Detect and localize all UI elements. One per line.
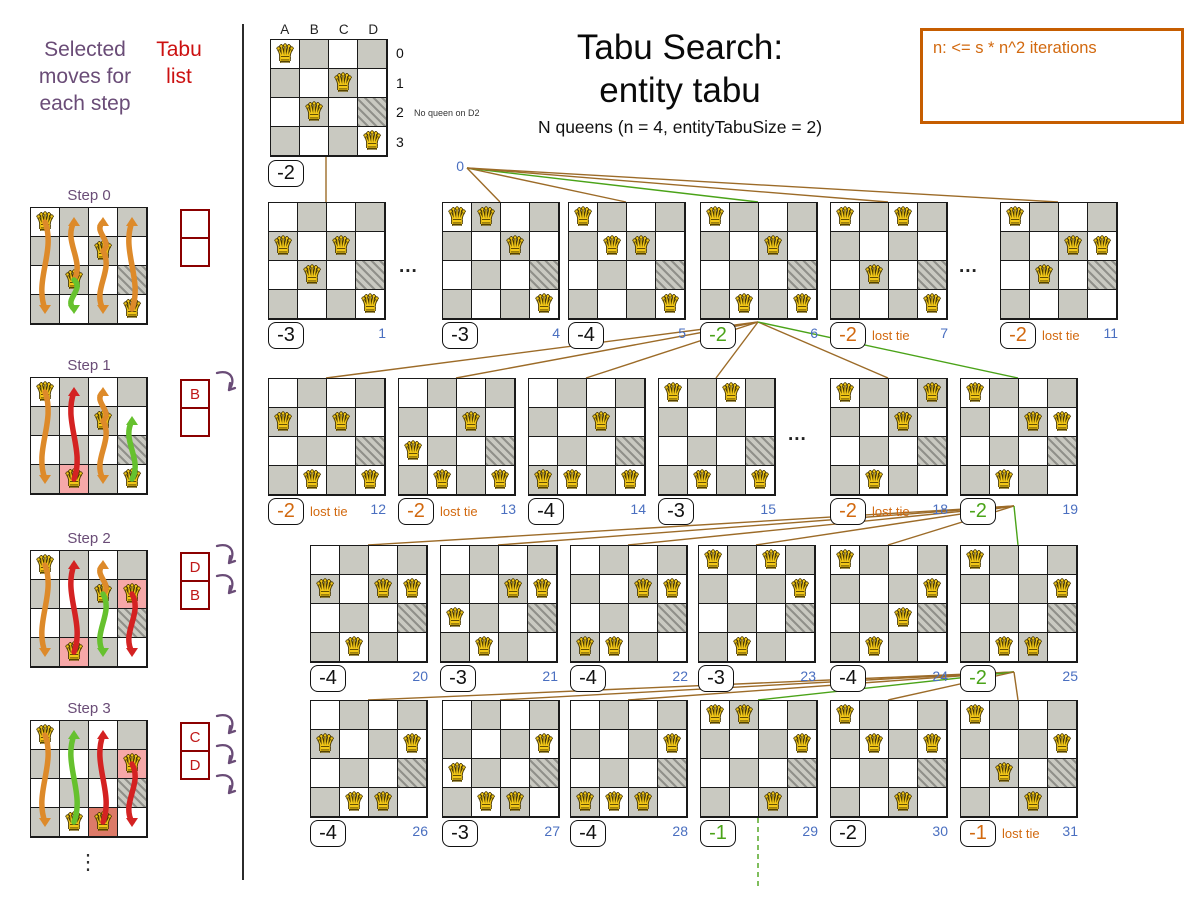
board-cell bbox=[443, 701, 472, 730]
step-board: ♛♛♛♛ bbox=[30, 207, 148, 325]
candidate-board: ♛♛♛♛ bbox=[830, 545, 948, 663]
queen-icon: ♛ bbox=[604, 636, 625, 659]
queen-icon: ♛ bbox=[403, 440, 424, 463]
queen-icon: ♛ bbox=[965, 549, 986, 572]
queen-icon: ♛ bbox=[64, 269, 85, 292]
board-cell: ♛ bbox=[918, 290, 947, 319]
queen-icon: ♛ bbox=[922, 382, 943, 405]
tabu-insert-arrow bbox=[213, 712, 239, 740]
board-cell: ♛ bbox=[470, 633, 499, 662]
board-cell bbox=[701, 759, 730, 788]
board-cell bbox=[571, 701, 600, 730]
board-cell bbox=[918, 604, 947, 633]
board-cell bbox=[961, 408, 990, 437]
board-cell bbox=[990, 575, 1019, 604]
board-cell bbox=[658, 701, 687, 730]
board-cell bbox=[298, 203, 327, 232]
board-cell bbox=[961, 788, 990, 817]
board-cell bbox=[89, 436, 118, 465]
queen-icon: ♛ bbox=[122, 583, 143, 606]
board-cell bbox=[730, 759, 759, 788]
board-cell bbox=[501, 261, 530, 290]
board-cell: ♛ bbox=[616, 466, 645, 495]
queen-icon: ♛ bbox=[573, 206, 594, 229]
board-cell bbox=[398, 604, 427, 633]
board-cell bbox=[831, 437, 860, 466]
board-cell bbox=[1048, 604, 1077, 633]
board-cell: ♛ bbox=[688, 466, 717, 495]
lost-tie-label: lost tie bbox=[310, 504, 348, 519]
board-cell bbox=[788, 232, 817, 261]
board-cell bbox=[269, 466, 298, 495]
board-cell: ♛ bbox=[31, 378, 60, 407]
queen-icon: ♛ bbox=[864, 469, 885, 492]
board-cell: ♛ bbox=[889, 203, 918, 232]
board-cell bbox=[860, 290, 889, 319]
board-cell bbox=[598, 261, 627, 290]
board-cell bbox=[558, 379, 587, 408]
queen-icon: ♛ bbox=[35, 554, 56, 577]
board-cell bbox=[788, 203, 817, 232]
board-cell: ♛ bbox=[269, 408, 298, 437]
board-cell: ♛ bbox=[443, 203, 472, 232]
board-cell: ♛ bbox=[701, 701, 730, 730]
score-badge: -4 bbox=[310, 665, 346, 692]
board-cell: ♛ bbox=[961, 546, 990, 575]
board-cell: ♛ bbox=[358, 127, 387, 156]
board-cell bbox=[918, 408, 947, 437]
iteration-index: 18 bbox=[916, 501, 948, 517]
queen-icon: ♛ bbox=[734, 704, 755, 727]
iterations-note-text: n: <= s * n^2 iterations bbox=[933, 39, 1097, 57]
board-cell bbox=[118, 266, 147, 295]
board-cell bbox=[688, 379, 717, 408]
board-cell bbox=[728, 546, 757, 575]
iteration-index: 19 bbox=[1046, 501, 1078, 517]
board-cell bbox=[529, 379, 558, 408]
queen-icon: ♛ bbox=[575, 791, 596, 814]
board-cell: ♛ bbox=[530, 730, 559, 759]
queen-icon: ♛ bbox=[273, 411, 294, 434]
board-cell bbox=[311, 759, 340, 788]
queen-icon: ♛ bbox=[1063, 235, 1084, 258]
board-cell: ♛ bbox=[889, 788, 918, 817]
queen-icon: ♛ bbox=[893, 206, 914, 229]
queen-icon: ♛ bbox=[1034, 264, 1055, 287]
queen-icon: ♛ bbox=[533, 469, 554, 492]
legend-tabu-list: Tabu list bbox=[146, 36, 212, 90]
board-cell bbox=[600, 759, 629, 788]
board-cell bbox=[990, 546, 1019, 575]
board-cell bbox=[398, 701, 427, 730]
board-cell bbox=[918, 546, 947, 575]
board-cell: ♛ bbox=[501, 232, 530, 261]
board-cell bbox=[889, 466, 918, 495]
board-cell bbox=[757, 575, 786, 604]
board-cell bbox=[31, 295, 60, 324]
board-cell bbox=[441, 633, 470, 662]
root-row-labels: 0123 bbox=[396, 39, 404, 157]
board-cell bbox=[990, 379, 1019, 408]
queen-icon: ♛ bbox=[604, 791, 625, 814]
queen-icon: ♛ bbox=[922, 733, 943, 756]
candidate-board: ♛♛♛♛ bbox=[568, 202, 686, 320]
board-cell bbox=[1048, 379, 1077, 408]
queen-icon: ♛ bbox=[476, 791, 497, 814]
queen-icon: ♛ bbox=[302, 469, 323, 492]
queen-icon: ♛ bbox=[721, 382, 742, 405]
board-cell bbox=[501, 203, 530, 232]
candidate-board: ♛♛♛♛ bbox=[700, 700, 818, 818]
board-cell bbox=[889, 701, 918, 730]
board-cell bbox=[961, 633, 990, 662]
board-cell: ♛ bbox=[501, 788, 530, 817]
score-badge: -2 bbox=[960, 498, 996, 525]
queen-icon: ♛ bbox=[705, 704, 726, 727]
board-cell bbox=[1059, 290, 1088, 319]
lost-tie-label: lost tie bbox=[440, 504, 478, 519]
board-cell bbox=[311, 546, 340, 575]
score-badge: -3 bbox=[698, 665, 734, 692]
board-cell: ♛ bbox=[298, 261, 327, 290]
queen-icon: ♛ bbox=[792, 293, 813, 316]
queen-icon: ♛ bbox=[893, 607, 914, 630]
queen-icon: ♛ bbox=[922, 578, 943, 601]
board-cell bbox=[530, 759, 559, 788]
queen-icon: ♛ bbox=[662, 578, 683, 601]
board-cell: ♛ bbox=[629, 788, 658, 817]
board-cell bbox=[271, 98, 300, 127]
board-cell bbox=[699, 604, 728, 633]
queen-icon: ♛ bbox=[734, 293, 755, 316]
board-cell bbox=[990, 604, 1019, 633]
tree-edge bbox=[758, 322, 888, 378]
candidate-board: ♛♛♛♛ bbox=[960, 545, 1078, 663]
board-cell bbox=[600, 575, 629, 604]
board-cell bbox=[89, 779, 118, 808]
board-cell: ♛ bbox=[327, 232, 356, 261]
queen-icon: ♛ bbox=[474, 636, 495, 659]
board-cell: ♛ bbox=[918, 730, 947, 759]
board-cell bbox=[701, 788, 730, 817]
board-cell bbox=[1019, 575, 1048, 604]
board-cell bbox=[831, 290, 860, 319]
board-cell bbox=[340, 730, 369, 759]
board-cell bbox=[428, 408, 457, 437]
iteration-index: 22 bbox=[656, 668, 688, 684]
queen-icon: ♛ bbox=[534, 293, 555, 316]
iteration-index: 13 bbox=[484, 501, 516, 517]
board-cell: ♛ bbox=[831, 546, 860, 575]
board-cell bbox=[990, 408, 1019, 437]
board-cell: ♛ bbox=[118, 465, 147, 494]
diagram-subtitle: N queens (n = 4, entityTabuSize = 2) bbox=[440, 117, 920, 138]
board-cell bbox=[1088, 203, 1117, 232]
board-cell bbox=[457, 437, 486, 466]
board-cell bbox=[598, 290, 627, 319]
board-cell bbox=[501, 730, 530, 759]
board-cell bbox=[1030, 232, 1059, 261]
board-cell bbox=[31, 237, 60, 266]
board-cell: ♛ bbox=[730, 701, 759, 730]
board-cell bbox=[571, 575, 600, 604]
board-cell bbox=[990, 788, 1019, 817]
tabu-slot bbox=[180, 407, 210, 437]
queen-icon: ♛ bbox=[344, 791, 365, 814]
board-cell bbox=[269, 379, 298, 408]
queen-icon: ♛ bbox=[633, 578, 654, 601]
board-cell bbox=[327, 379, 356, 408]
board-cell bbox=[990, 730, 1019, 759]
board-cell: ♛ bbox=[990, 466, 1019, 495]
tree-edge bbox=[1014, 672, 1018, 700]
board-cell bbox=[60, 580, 89, 609]
board-cell: ♛ bbox=[1019, 633, 1048, 662]
queen-icon: ♛ bbox=[575, 636, 596, 659]
board-cell: ♛ bbox=[472, 788, 501, 817]
board-cell: ♛ bbox=[1048, 408, 1077, 437]
board-cell bbox=[31, 436, 60, 465]
board-cell bbox=[717, 466, 746, 495]
iteration-index: 28 bbox=[656, 823, 688, 839]
board-cell: ♛ bbox=[961, 379, 990, 408]
board-cell bbox=[398, 633, 427, 662]
board-cell bbox=[60, 407, 89, 436]
board-cell bbox=[300, 40, 329, 69]
tabu-slot: C bbox=[180, 722, 210, 752]
board-cell bbox=[298, 408, 327, 437]
board-cell bbox=[1019, 546, 1048, 575]
board-cell bbox=[961, 730, 990, 759]
queen-icon: ♛ bbox=[461, 411, 482, 434]
board-cell bbox=[831, 408, 860, 437]
board-cell bbox=[441, 546, 470, 575]
board-cell bbox=[759, 290, 788, 319]
queen-icon: ♛ bbox=[402, 733, 423, 756]
queen-icon: ♛ bbox=[761, 549, 782, 572]
board-cell bbox=[60, 609, 89, 638]
score-badge: -4 bbox=[310, 820, 346, 847]
queen-icon: ♛ bbox=[660, 293, 681, 316]
step-label: Step 0 bbox=[30, 187, 148, 204]
board-cell bbox=[889, 575, 918, 604]
board-cell: ♛ bbox=[658, 575, 687, 604]
board-cell bbox=[1048, 701, 1077, 730]
board-cell bbox=[89, 750, 118, 779]
candidate-board: ♛♛♛♛ bbox=[268, 202, 386, 320]
board-cell bbox=[786, 633, 815, 662]
board-cell bbox=[369, 604, 398, 633]
board-cell bbox=[443, 730, 472, 759]
board-cell bbox=[990, 701, 1019, 730]
board-cell bbox=[300, 69, 329, 98]
board-cell bbox=[118, 208, 147, 237]
candidate-board: ♛♛♛♛ bbox=[830, 700, 948, 818]
board-cell bbox=[311, 633, 340, 662]
board-cell bbox=[499, 633, 528, 662]
board-cell: ♛ bbox=[990, 633, 1019, 662]
board-cell: ♛ bbox=[441, 604, 470, 633]
board-cell bbox=[1048, 466, 1077, 495]
tabu-slot: B bbox=[180, 580, 210, 610]
board-cell bbox=[1088, 261, 1117, 290]
board-cell bbox=[60, 436, 89, 465]
board-cell bbox=[472, 701, 501, 730]
queen-icon: ♛ bbox=[1023, 791, 1044, 814]
board-cell bbox=[340, 575, 369, 604]
queen-icon: ♛ bbox=[122, 298, 143, 321]
board-cell bbox=[269, 437, 298, 466]
tabu-insert-arrow bbox=[213, 572, 239, 600]
board-cell bbox=[118, 638, 147, 667]
board-cell bbox=[889, 232, 918, 261]
legend-selected-moves: Selected moves for each step bbox=[22, 36, 148, 117]
queen-icon: ♛ bbox=[64, 811, 85, 834]
board-cell bbox=[860, 203, 889, 232]
queen-icon: ♛ bbox=[732, 636, 753, 659]
board-cell bbox=[746, 437, 775, 466]
board-cell bbox=[443, 788, 472, 817]
board-cell bbox=[530, 232, 559, 261]
board-cell: ♛ bbox=[499, 575, 528, 604]
score-badge: -1 bbox=[960, 820, 996, 847]
board-cell bbox=[428, 437, 457, 466]
board-cell bbox=[587, 379, 616, 408]
board-cell bbox=[656, 203, 685, 232]
board-cell bbox=[298, 437, 327, 466]
board-cell bbox=[470, 604, 499, 633]
queen-icon: ♛ bbox=[562, 469, 583, 492]
board-cell bbox=[472, 232, 501, 261]
queen-icon: ♛ bbox=[633, 791, 654, 814]
board-cell: ♛ bbox=[118, 750, 147, 779]
board-cell bbox=[918, 466, 947, 495]
board-cell bbox=[786, 604, 815, 633]
board-cell bbox=[701, 730, 730, 759]
board-cell: ♛ bbox=[329, 69, 358, 98]
board-cell bbox=[398, 788, 427, 817]
tabu-insert-arrow bbox=[213, 542, 239, 570]
board-cell bbox=[60, 378, 89, 407]
iteration-index: 5 bbox=[654, 325, 686, 341]
board-cell bbox=[889, 261, 918, 290]
board-cell bbox=[530, 788, 559, 817]
board-cell: ♛ bbox=[311, 730, 340, 759]
board-cell bbox=[441, 575, 470, 604]
queen-icon: ♛ bbox=[64, 468, 85, 491]
board-cell bbox=[89, 638, 118, 667]
tabu-slot bbox=[180, 209, 210, 239]
queen-icon: ♛ bbox=[790, 578, 811, 601]
board-cell bbox=[399, 408, 428, 437]
board-cell bbox=[831, 730, 860, 759]
board-cell bbox=[569, 290, 598, 319]
board-cell bbox=[918, 701, 947, 730]
board-cell bbox=[961, 466, 990, 495]
iteration-index: 23 bbox=[784, 668, 816, 684]
queen-icon: ♛ bbox=[331, 235, 352, 258]
board-cell bbox=[327, 466, 356, 495]
board-cell: ♛ bbox=[759, 788, 788, 817]
board-cell bbox=[443, 261, 472, 290]
queen-icon: ♛ bbox=[994, 469, 1015, 492]
board-cell bbox=[629, 633, 658, 662]
queen-icon: ♛ bbox=[505, 235, 526, 258]
row-label: 1 bbox=[396, 69, 404, 99]
queen-icon: ♛ bbox=[1052, 578, 1073, 601]
score-badge: -2 bbox=[1000, 322, 1036, 349]
queen-icon: ♛ bbox=[1023, 411, 1044, 434]
candidate-board: ♛♛♛♛ bbox=[830, 202, 948, 320]
board-cell bbox=[1019, 466, 1048, 495]
queen-icon: ♛ bbox=[994, 636, 1015, 659]
board-cell bbox=[358, 69, 387, 98]
board-cell bbox=[831, 575, 860, 604]
score-badge: -2 bbox=[960, 665, 996, 692]
board-cell bbox=[616, 408, 645, 437]
queen-icon: ♛ bbox=[373, 791, 394, 814]
iteration-index: 29 bbox=[786, 823, 818, 839]
board-cell bbox=[398, 546, 427, 575]
board-cell: ♛ bbox=[340, 788, 369, 817]
board-cell bbox=[860, 546, 889, 575]
board-cell bbox=[730, 730, 759, 759]
board-cell: ♛ bbox=[786, 575, 815, 604]
queen-icon: ♛ bbox=[333, 72, 354, 95]
candidate-board: ♛♛♛♛ bbox=[700, 202, 818, 320]
score-badge: -4 bbox=[570, 665, 606, 692]
board-cell: ♛ bbox=[990, 759, 1019, 788]
board-cell bbox=[118, 609, 147, 638]
board-cell bbox=[472, 290, 501, 319]
board-cell bbox=[356, 437, 385, 466]
board-cell bbox=[60, 779, 89, 808]
iteration-index: 31 bbox=[1046, 823, 1078, 839]
board-cell bbox=[571, 730, 600, 759]
row-label: 2 bbox=[396, 98, 404, 128]
board-cell bbox=[961, 759, 990, 788]
queen-icon: ♛ bbox=[663, 382, 684, 405]
board-cell: ♛ bbox=[656, 290, 685, 319]
board-cell bbox=[356, 203, 385, 232]
candidate-board: ♛♛♛♛ bbox=[570, 545, 688, 663]
iteration-index: 24 bbox=[916, 668, 948, 684]
queen-icon: ♛ bbox=[445, 607, 466, 630]
board-cell bbox=[269, 261, 298, 290]
tabu-slot bbox=[180, 237, 210, 267]
queen-icon: ♛ bbox=[64, 641, 85, 664]
board-cell: ♛ bbox=[701, 203, 730, 232]
tree-edge bbox=[467, 168, 1058, 202]
board-cell bbox=[31, 266, 60, 295]
board-cell: ♛ bbox=[60, 266, 89, 295]
board-cell bbox=[629, 701, 658, 730]
iteration-index: 6 bbox=[786, 325, 818, 341]
board-cell bbox=[60, 237, 89, 266]
board-cell: ♛ bbox=[31, 208, 60, 237]
score-badge: -2 bbox=[398, 498, 434, 525]
board-cell bbox=[759, 261, 788, 290]
board-cell bbox=[31, 407, 60, 436]
board-cell bbox=[356, 232, 385, 261]
lost-tie-label: lost tie bbox=[1042, 328, 1080, 343]
board-cell bbox=[1019, 437, 1048, 466]
board-cell: ♛ bbox=[860, 261, 889, 290]
board-cell bbox=[356, 379, 385, 408]
lost-tie-label: lost tie bbox=[872, 504, 910, 519]
board-cell bbox=[1048, 546, 1077, 575]
queen-icon: ♛ bbox=[93, 583, 114, 606]
